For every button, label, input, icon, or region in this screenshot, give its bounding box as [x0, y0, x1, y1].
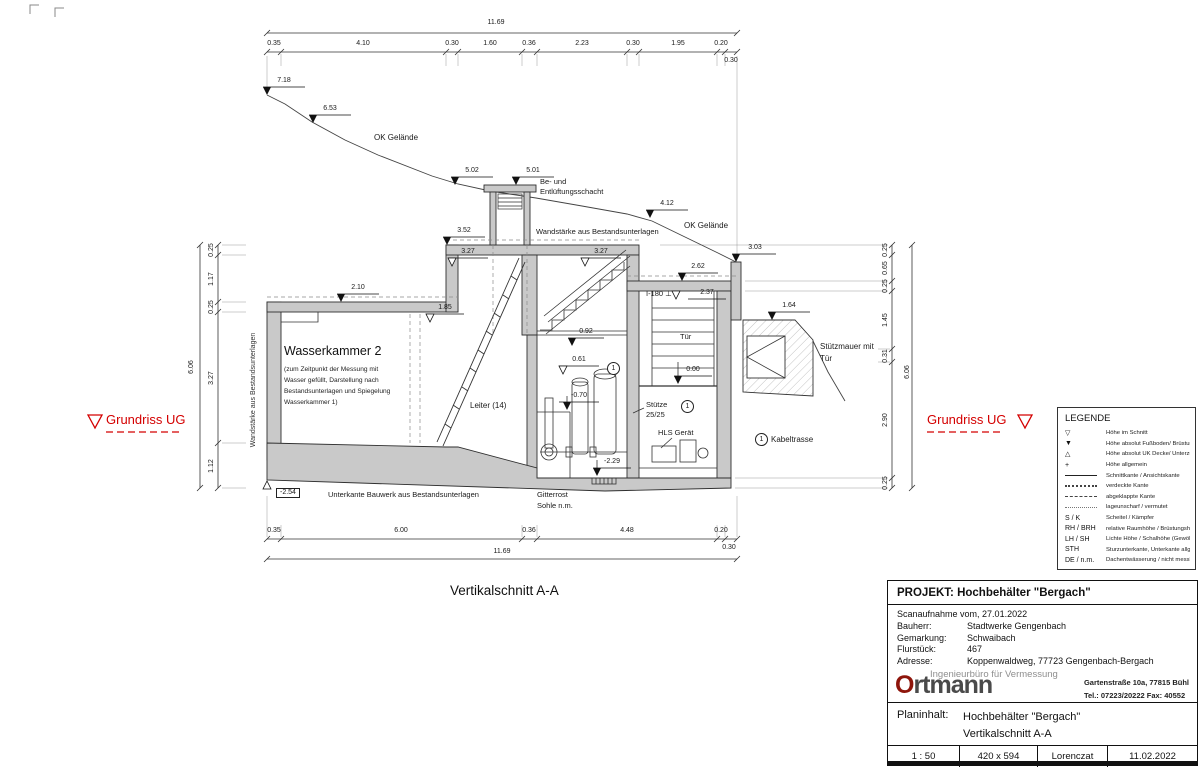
- info-value: 467: [967, 644, 982, 654]
- info-rows: Bauherr:Stadtwerke GengenbachGemarkung:S…: [897, 621, 1197, 666]
- position-marker: 1: [607, 362, 620, 375]
- drawing-label: 0.30: [722, 544, 736, 552]
- level-label: 4.12: [660, 200, 674, 208]
- drawing-label: 0.25: [208, 300, 216, 314]
- legend-label: abgeklappte Kante: [1106, 494, 1155, 500]
- grundriss-markers: [88, 415, 1032, 432]
- line-sample-icon: [1065, 485, 1097, 487]
- legend-key: RH / BRH: [1065, 525, 1101, 532]
- drawing-label: 0.25: [882, 476, 890, 490]
- drawing-label: Leiter (14): [470, 401, 506, 410]
- legend-item: S / KScheitel / Kämpfer: [1065, 513, 1190, 524]
- drawing-label: HLS Gerät: [658, 429, 693, 438]
- level-label: 5.01: [526, 167, 540, 175]
- drawing-label: 1.17: [208, 272, 216, 286]
- terrain-label: OK Gelände: [374, 133, 418, 142]
- legend-item: STHSturzunterkante, Unterkante allgemein: [1065, 545, 1190, 556]
- scale-cell: 1 : 50: [888, 746, 960, 767]
- drawing-label: Sohle n.m.: [537, 502, 573, 511]
- info-row: Adresse:Koppenwaldweg, 77723 Gengenbach-…: [897, 656, 1197, 666]
- drawing-label: 0.36: [522, 40, 536, 48]
- level-label: 2.37: [700, 289, 714, 297]
- legend-line-solid-icon: [1065, 475, 1101, 476]
- legend-item: verdeckte Kante: [1065, 481, 1190, 492]
- drawing-label: 6.06: [904, 365, 912, 379]
- position-marker: 1: [681, 400, 694, 413]
- line-sample-icon: [1065, 496, 1097, 497]
- drawing-label: I-180 ⊥: [646, 290, 672, 299]
- level-label-boxed: -2.54: [276, 488, 300, 498]
- legend-title: LEGENDE: [1065, 413, 1190, 424]
- drawing-label: 4.10: [356, 40, 370, 48]
- legend-triangle-icon: +: [1065, 462, 1101, 469]
- level-label: 2.10: [351, 284, 365, 292]
- legend-label: Höhe allgemein: [1106, 462, 1147, 468]
- legend-label: Höhe im Schnitt: [1106, 430, 1148, 436]
- level-label: 7.18: [277, 77, 291, 85]
- stairs: [522, 250, 630, 335]
- drawing-label: 0.25: [882, 243, 890, 257]
- plan-line1: Hochbehälter "Bergach": [963, 709, 1080, 726]
- legend-label: Höhe absolut Fußboden/ Brüstung Bestand: [1106, 441, 1190, 447]
- info-label: Adresse:: [897, 656, 967, 666]
- door-room: [567, 291, 717, 484]
- legend-item: ▼Höhe absolut Fußboden/ Brüstung Bestand: [1065, 439, 1190, 450]
- legend-key: LH / SH: [1065, 536, 1101, 543]
- legend-line-dotted-icon: [1065, 485, 1101, 487]
- info-row: Gemarkung:Schwaibach: [897, 633, 1197, 643]
- level-label: 0.61: [572, 356, 586, 364]
- drawing-label: 1.45: [882, 313, 890, 327]
- drawing-label: 1.12: [208, 459, 216, 473]
- plan-line2: Vertikalschnitt A-A: [963, 726, 1080, 743]
- legend-item: LH / SHLichte Höhe / Schalhöhe (Gewölbe): [1065, 534, 1190, 545]
- dim-overall-bottom: 11.69: [494, 548, 511, 556]
- date-cell: 11.02.2022: [1108, 746, 1197, 767]
- legend-box: LEGENDE ▽Höhe im Schnitt▼Höhe absolut Fu…: [1057, 407, 1196, 570]
- legend-label: Dachentwässerung / nicht messbar: [1106, 557, 1190, 563]
- legend-triangle-icon: ▽: [1065, 429, 1101, 437]
- drawing-caption: Vertikalschnitt A-A: [450, 583, 559, 599]
- legend-key: S / K: [1065, 515, 1101, 522]
- project-title: PROJEKT: Hochbehälter "Bergach": [888, 581, 1197, 605]
- drawing-label: 0.25: [208, 243, 216, 257]
- drawing-label: 0.30: [626, 40, 640, 48]
- grundriss-ug-left-link: Grundriss UG: [106, 413, 185, 428]
- company-block: Ingenieurbüro für Vermessung Ortmann Gar…: [888, 669, 1197, 703]
- level-label: 3.03: [748, 244, 762, 252]
- format-cell: 420 x 594: [960, 746, 1038, 767]
- level-label: 3.52: [457, 227, 471, 235]
- legend-item: +Höhe allgemein: [1065, 460, 1190, 471]
- drawing-label: (zum Zeitpunkt der Messung mit: [284, 366, 378, 374]
- level-label: 1.85: [438, 304, 452, 312]
- legend-label: Scheitel / Kämpfer: [1106, 515, 1154, 521]
- level-label: 0.00: [686, 366, 700, 374]
- legend-label: verdeckte Kante: [1106, 483, 1149, 489]
- legend-item: △Höhe absolut UK Decke/ Unterzug/ Träger…: [1065, 449, 1190, 460]
- drawing-label: Be- und: [540, 178, 566, 187]
- company-address: Gartenstraße 10a, 77815 Bühl Tel.: 07223…: [1084, 677, 1189, 703]
- drawing-label: 0.30: [724, 57, 738, 65]
- info-value: Koppenwaldweg, 77723 Gengenbach-Bergach: [967, 656, 1154, 666]
- legend-label: lageunscharf / vermutet: [1106, 504, 1168, 510]
- line-sample-icon: [1065, 507, 1097, 508]
- drawing-label: 1.60: [483, 40, 497, 48]
- legend-triangle-icon: △: [1065, 450, 1101, 458]
- info-label: Gemarkung:: [897, 633, 967, 643]
- title-block-footer: 1 : 50 420 x 594 Lorenczat 11.02.2022: [888, 746, 1197, 767]
- position-marker: 1: [755, 433, 768, 446]
- company-street: Gartenstraße 10a, 77815 Bühl: [1084, 677, 1189, 690]
- company-logo: Ortmann: [895, 673, 992, 698]
- company-phone: Tel.: 07223/20222 Fax: 40552: [1084, 690, 1189, 703]
- legend-item: Schnittkante / Ansichtskante: [1065, 470, 1190, 481]
- author-cell: Lorenczat: [1038, 746, 1108, 767]
- legend-label: relative Raumhöhe / Brüstungshöhe: [1106, 526, 1190, 532]
- drawing-label: 3.27: [208, 371, 216, 385]
- legend-line-fine-icon: [1065, 507, 1101, 508]
- dim-overall-top: 11.69: [488, 19, 505, 27]
- level-label: 6.53: [323, 105, 337, 113]
- legend-items: ▽Höhe im Schnitt▼Höhe absolut Fußboden/ …: [1065, 428, 1190, 566]
- info-value: Stadtwerke Gengenbach: [967, 621, 1066, 631]
- drawing-label: 0.20: [714, 40, 728, 48]
- retaining-wall: [743, 320, 813, 396]
- drawing-label: 0.35: [267, 40, 281, 48]
- level-label: 1.64: [782, 302, 796, 310]
- plan-content-value: Hochbehälter "Bergach" Vertikalschnitt A…: [963, 709, 1080, 745]
- drawing-label: 2.23: [575, 40, 589, 48]
- legend-label: Schnittkante / Ansichtskante: [1106, 473, 1180, 479]
- building-walls: [267, 185, 741, 491]
- level-label: -2.29: [604, 458, 620, 466]
- level-label: 3.27: [461, 248, 475, 256]
- level-label: 2.62: [691, 263, 705, 271]
- drawing-label: Bestandsunterlagen und Spiegelung: [284, 388, 390, 396]
- fold-marks: [30, 5, 64, 17]
- level-label: 3.27: [594, 248, 608, 256]
- info-label: Flurstück:: [897, 644, 967, 654]
- drawing-label: 25/25: [646, 411, 665, 420]
- drawing-label: Tür: [680, 333, 691, 342]
- wall-note-vertical: Wandstärke aus Bestandsunterlagen: [250, 333, 258, 448]
- vent-shaft-louvre: [498, 194, 522, 209]
- drawing-label: Tür: [820, 354, 832, 363]
- logo-letter-o: O: [895, 671, 913, 699]
- chamber-details: [281, 312, 318, 322]
- drawing-label: Kabeltrasse: [771, 435, 813, 444]
- hidden-edges: [267, 240, 737, 443]
- level-label: -0.70: [571, 392, 587, 400]
- info-label: Bauherr:: [897, 621, 967, 631]
- legend-triangle-icon: ▼: [1065, 440, 1101, 447]
- drawing-label: 0.36: [522, 527, 536, 535]
- legend-label: Lichte Höhe / Schalhöhe (Gewölbe): [1106, 536, 1190, 542]
- info-row: Bauherr:Stadtwerke Gengenbach: [897, 621, 1197, 631]
- drawing-label: 0.31: [882, 349, 890, 363]
- drawing-label: 0.20: [714, 527, 728, 535]
- level-label: 5.02: [465, 167, 479, 175]
- legend-label: Sturzunterkante, Unterkante allgemein: [1106, 547, 1190, 553]
- drawing-label: Stützmauer mit: [820, 342, 874, 351]
- drawing-label: 6.06: [188, 360, 196, 374]
- room-title: Wasserkammer 2: [284, 344, 381, 358]
- drawing-label: 2.90: [882, 413, 890, 427]
- level-label: 0.92: [579, 328, 593, 336]
- legend-label: Höhe absolut UK Decke/ Unterzug/ Träger …: [1106, 451, 1190, 457]
- drawing-label: 0.65: [882, 261, 890, 275]
- legend-item: RH / BRHrelative Raumhöhe / Brüstungshöh…: [1065, 523, 1190, 534]
- drawing-label: Wasser gefüllt, Darstellung nach: [284, 377, 379, 385]
- info-value: Schwaibach: [967, 633, 1016, 643]
- drawing-label: Stütze: [646, 401, 667, 410]
- drawing-label: Gitterrost: [537, 491, 568, 500]
- drawing-label: 4.48: [620, 527, 634, 535]
- project-info: Scanaufnahme vom, 27.01.2022 Bauherr:Sta…: [888, 605, 1197, 669]
- drawing-label: Wasserkammer 1): [284, 399, 338, 407]
- drawing-label: 0.30: [445, 40, 459, 48]
- terrain-label: OK Gelände: [684, 221, 728, 230]
- drawing-label: Unterkante Bauwerk aus Bestandsunterlage…: [328, 491, 479, 500]
- legend-line-dashed-icon: [1065, 496, 1101, 497]
- drawing-label: 0.25: [882, 279, 890, 293]
- grundriss-ug-right-link: Grundriss UG: [927, 413, 1006, 428]
- drawing-label: Wandstärke aus Bestandsunterlagen: [536, 228, 659, 237]
- drawing-sheet: 11.690.354.100.301.600.362.230.301.950.2…: [0, 0, 1200, 775]
- legend-item: DE / n.m.Dachentwässerung / nicht messba…: [1065, 555, 1190, 566]
- scan-date: Scanaufnahme vom, 27.01.2022: [897, 609, 1197, 619]
- line-sample-icon: [1065, 475, 1097, 476]
- logo-letters: rtmann: [913, 671, 992, 699]
- title-block: PROJEKT: Hochbehälter "Bergach" Scanaufn…: [887, 580, 1198, 766]
- legend-item: abgeklappte Kante: [1065, 492, 1190, 503]
- drawing-label: Entlüftungsschacht: [540, 188, 603, 197]
- info-row: Flurstück:467: [897, 644, 1197, 654]
- plan-content: Planinhalt: Hochbehälter "Bergach" Verti…: [888, 703, 1197, 746]
- plan-content-label: Planinhalt:: [897, 709, 963, 745]
- legend-key: STH: [1065, 546, 1101, 553]
- drawing-label: 0.35: [267, 527, 281, 535]
- legend-item: lageunscharf / vermutet: [1065, 502, 1190, 513]
- drawing-label: 1.95: [671, 40, 685, 48]
- drawing-label: 6.00: [394, 527, 408, 535]
- legend-item: ▽Höhe im Schnitt: [1065, 428, 1190, 439]
- legend-key: DE / n.m.: [1065, 557, 1101, 564]
